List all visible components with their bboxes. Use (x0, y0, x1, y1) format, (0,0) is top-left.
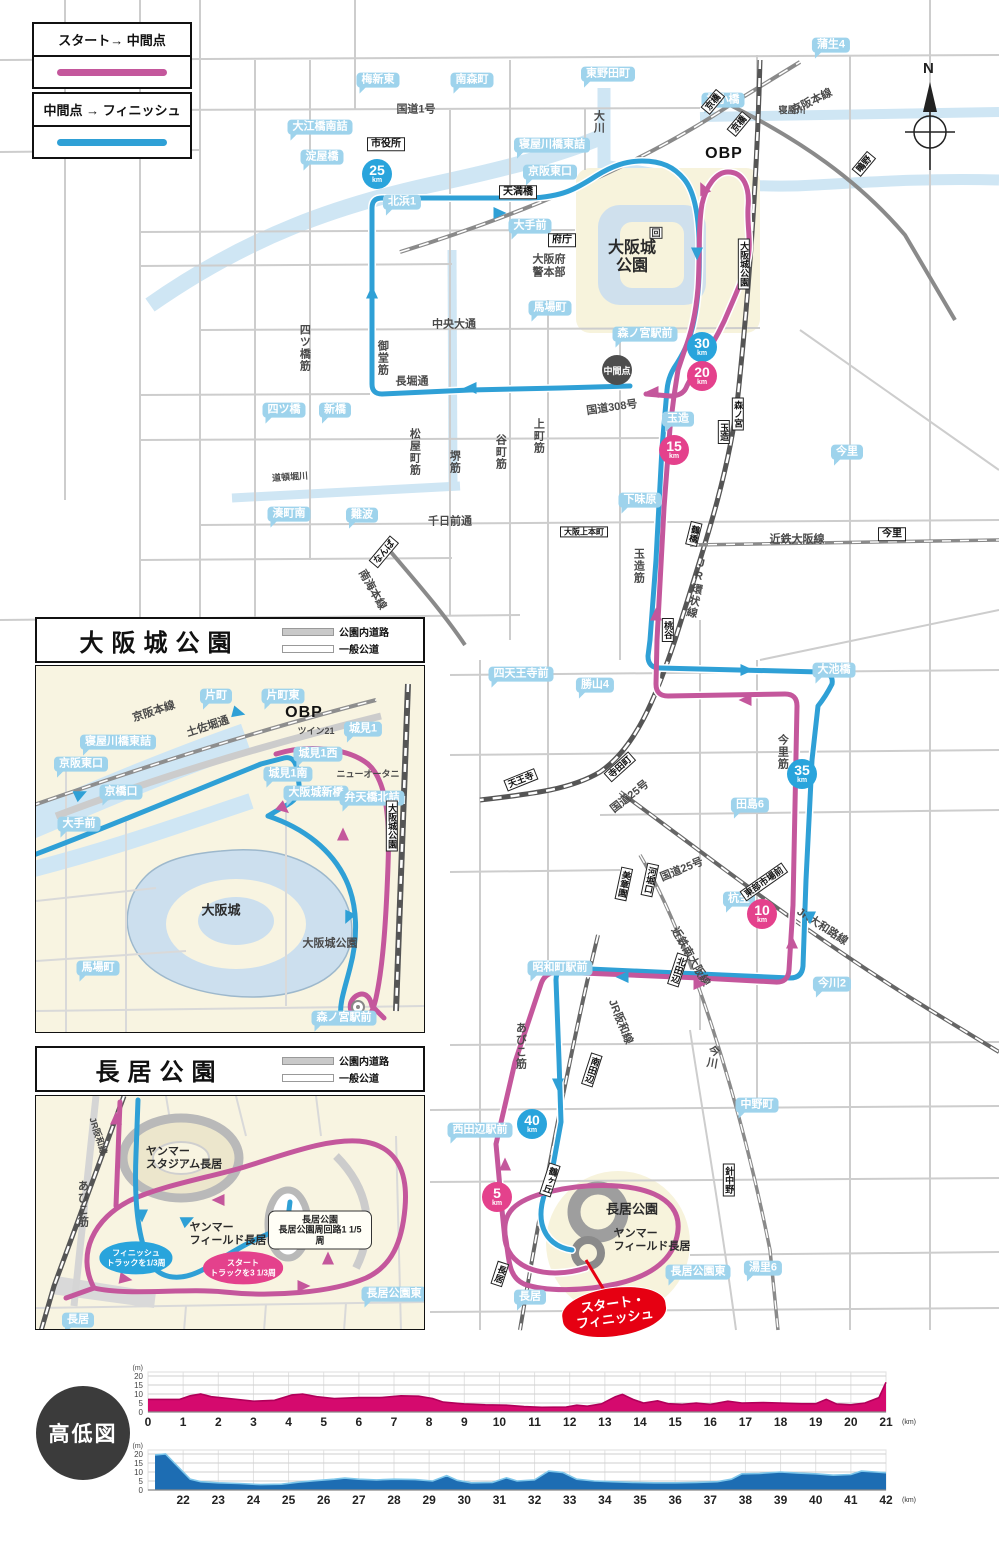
intersection-label: 蒲生4 (812, 38, 850, 53)
y-tick-label: 5 (139, 1477, 144, 1486)
y-tick-label: 5 (139, 1399, 144, 1408)
km-value: 25 (362, 164, 392, 177)
km-marker: 35km (787, 759, 817, 789)
intersection-label: 長居公園東 (362, 1287, 426, 1302)
road-label: 中央大通 (432, 319, 476, 332)
route-arrow-icon (110, 1112, 122, 1125)
x-axis-unit: (km) (902, 1419, 916, 1426)
inset-nagai-legend: 公園内道路 一般公道 (282, 1051, 423, 1087)
x-tick-label: 18 (774, 1415, 788, 1429)
road-label: あびこ筋 (76, 1180, 89, 1228)
y-tick-label: 15 (134, 1381, 143, 1390)
x-tick-label: 34 (598, 1493, 612, 1507)
intersection-label: 馬場町 (77, 961, 120, 976)
x-tick-label: 28 (387, 1493, 401, 1507)
intersection-label: 北浜1 (383, 195, 421, 210)
station-label: 大阪城公園 (386, 801, 398, 852)
x-tick-label: 37 (704, 1493, 718, 1507)
park-road-swatch (282, 1057, 334, 1065)
intersection-label: 城見1西 (293, 747, 342, 762)
x-tick-label: 17 (739, 1415, 753, 1429)
km-unit: km (482, 1200, 512, 1207)
intersection-label: 長居 (514, 1290, 546, 1305)
area-label: 大阪城 公園 (608, 240, 656, 277)
intersection-label: 湊町南 (268, 507, 311, 522)
inset-castle-title: 大阪城公園 (37, 623, 282, 658)
park-road-label: 公園内道路 (339, 1053, 389, 1068)
km-value: 15 (659, 440, 689, 453)
x-tick-label: 24 (247, 1493, 261, 1507)
intersection-label: 森ノ宮駅前 (613, 327, 678, 342)
km-marker: 10km (747, 899, 777, 929)
route-arrow-icon (464, 382, 477, 394)
park-road-label: 公園内道路 (339, 624, 389, 639)
legend-second-half: 中間点 → フィニッシュ (32, 92, 192, 159)
x-tick-label: 7 (391, 1415, 398, 1429)
road-label: OBP (285, 704, 323, 722)
x-tick-label: 16 (704, 1415, 718, 1429)
start-to-midpoint-profile (148, 1382, 886, 1412)
road-label: 谷町筋 (494, 434, 507, 470)
road-label: 堺筋 (448, 450, 461, 474)
x-tick-label: 4 (285, 1415, 292, 1429)
route-arrow-icon (650, 608, 662, 621)
road-label: 松屋町筋 (408, 428, 421, 476)
km-value: 30 (687, 337, 717, 350)
intersection-label: 四ツ橋 (263, 403, 306, 418)
y-tick-label: 10 (134, 1468, 143, 1477)
y-axis-unit: (m) (133, 1443, 144, 1450)
road-label: 大阪府 警本部 (533, 253, 566, 278)
route-arrow-icon (786, 936, 798, 949)
km-value: 40 (517, 1114, 547, 1127)
intersection-label: 下味原 (619, 493, 662, 508)
elevation-badge: 高低図 (36, 1386, 130, 1480)
inset-castle-legend: 公園内道路 一般公道 (282, 622, 423, 658)
x-tick-label: 38 (739, 1493, 753, 1507)
x-axis-unit: (km) (902, 1497, 916, 1504)
road-label: 千日前通 (428, 516, 472, 529)
km-unit: km (659, 453, 689, 460)
intersection-label: 城見1 (344, 722, 382, 737)
x-tick-label: 12 (563, 1415, 577, 1429)
road-label: 大川 (592, 110, 605, 134)
route-arrow-icon (499, 1158, 511, 1171)
station-label: 大阪城公園 (738, 239, 750, 290)
route-arrow-icon (298, 1280, 311, 1292)
km-marker: 20km (687, 361, 717, 391)
route-arrow-icon (694, 978, 707, 990)
road-label: あびこ筋 (514, 1022, 527, 1070)
route-arrow-icon (691, 248, 703, 261)
x-tick-label: 8 (426, 1415, 433, 1429)
intersection-label: 新橋 (319, 403, 351, 418)
km-unit: km (747, 917, 777, 924)
intersection-label: 片町 (200, 689, 232, 704)
road-label: ニューオータニ (336, 769, 399, 779)
intersection-label: 寝屋川橋東詰 (80, 735, 156, 750)
x-tick-label: 10 (493, 1415, 507, 1429)
elevation-charts: 05101520(m)01234567891011121314151617181… (0, 1357, 999, 1537)
x-tick-label: 0 (145, 1415, 152, 1429)
km-value: 10 (747, 904, 777, 917)
intersection-label: 勝山4 (576, 678, 614, 693)
y-tick-label: 0 (139, 1408, 144, 1417)
course-map-page: スタート→ 中間点 中間点 → フィニッシュ N 梅新東南森町東野田町桜小橋蒲生… (0, 0, 999, 1557)
area-label: ヤンマー フィールド長居 (614, 1227, 691, 1252)
x-tick-label: 41 (844, 1493, 858, 1507)
road-label: OBP (705, 145, 743, 163)
x-tick-label: 3 (250, 1415, 257, 1429)
inset-nagai-title: 長居公園 (37, 1052, 282, 1087)
road-label: 大阪城公園 (303, 938, 358, 951)
x-tick-label: 20 (844, 1415, 858, 1429)
intersection-label: 四天王寺前 (489, 667, 554, 682)
x-tick-label: 5 (320, 1415, 327, 1429)
place-label: 天満橋 (499, 185, 537, 199)
legend-first-half-title: スタート→ 中間点 (34, 24, 190, 57)
route-arrow-icon (552, 1079, 564, 1092)
x-tick-label: 6 (356, 1415, 363, 1429)
x-tick-label: 1 (180, 1415, 187, 1429)
road-label: 四ツ橋筋 (298, 324, 311, 372)
x-tick-label: 31 (493, 1493, 507, 1507)
km-marker: 40km (517, 1109, 547, 1139)
area-label: 長居公園 (606, 1203, 658, 1218)
inset-castle-map: 片町片町東OBPツイン21城見1城見1西城見1南大阪城新橋ニューオータニ弁天橋北… (35, 665, 425, 1033)
y-tick-label: 15 (134, 1459, 143, 1468)
x-tick-label: 13 (598, 1415, 612, 1429)
place-label: 市役所 (367, 137, 405, 151)
km-unit: km (517, 1127, 547, 1134)
road-label: 国道1号 (396, 104, 435, 117)
route-arrow-icon (646, 386, 659, 398)
route-arrow-icon (212, 1194, 225, 1206)
place-label: 府庁 (548, 233, 576, 247)
route-arrow-icon (136, 1210, 148, 1223)
legend-first-half: スタート→ 中間点 (32, 22, 192, 89)
x-tick-label: 23 (212, 1493, 226, 1507)
route-arrow-icon (337, 828, 349, 841)
park-road-swatch (282, 628, 334, 636)
inset-nagai-header: 長居公園 公園内道路 一般公道 (35, 1046, 425, 1092)
x-tick-label: 32 (528, 1493, 542, 1507)
station-label: 桃谷 (662, 618, 674, 642)
km-marker: 25km (362, 159, 392, 189)
public-road-label: 一般公道 (339, 1070, 379, 1085)
x-tick-label: 40 (809, 1493, 823, 1507)
km-marker: 30km (687, 332, 717, 362)
station-label: 玉造 (718, 420, 730, 444)
intersection-label: 東野田町 (581, 67, 635, 82)
intersection-label: 中野町 (736, 1098, 779, 1113)
route-arrow-icon (741, 664, 754, 676)
inset-castle-header: 大阪城公園 公園内道路 一般公道 (35, 617, 425, 663)
intersection-label: 西田辺駅前 (448, 1123, 513, 1138)
place-label: 今里 (878, 527, 906, 541)
intersection-label: 京阪東口 (523, 165, 577, 180)
area-label: ヤンマー スタジアム長居 (146, 1145, 222, 1170)
x-tick-label: 35 (633, 1493, 647, 1507)
intersection-label: 玉造 (662, 412, 694, 427)
station-label: 針中野 (723, 1164, 735, 1197)
x-tick-label: 2 (215, 1415, 222, 1429)
km-unit: km (687, 350, 717, 357)
intersection-label: 梅新東 (357, 73, 400, 88)
intersection-label: 京阪東口 (54, 757, 108, 772)
intersection-label: 城見1南 (263, 767, 312, 782)
intersection-label: 田島6 (731, 798, 769, 813)
intersection-label: 湯里6 (744, 1261, 782, 1276)
km-unit: km (687, 379, 717, 386)
x-tick-label: 25 (282, 1493, 296, 1507)
km-unit: km (787, 777, 817, 784)
intersection-label: 淀屋橋 (301, 150, 344, 165)
station-label: 森ノ宮 (732, 398, 744, 431)
compass-rose (895, 60, 965, 180)
x-tick-label: 22 (176, 1493, 190, 1507)
intersection-label: 大手前 (58, 817, 101, 832)
y-tick-label: 0 (139, 1486, 144, 1495)
intersection-label: 大江橋南詰 (288, 120, 353, 135)
route-arrow-icon (616, 971, 629, 983)
km-value: 5 (482, 1187, 512, 1200)
second-half-line-sample (57, 139, 167, 146)
road-label: 玉造筋 (632, 548, 645, 584)
midpoint-marker: 中間点 (602, 355, 632, 385)
compass-icon: N (895, 60, 965, 180)
route-arrow-icon (739, 694, 752, 706)
x-tick-label: 11 (528, 1415, 541, 1429)
x-tick-label: 36 (668, 1493, 682, 1507)
km-unit: km (362, 177, 392, 184)
km-value: 20 (687, 366, 717, 379)
km-marker: 5km (482, 1182, 512, 1212)
x-tick-label: 27 (352, 1493, 366, 1507)
intersection-label: 南森町 (451, 73, 494, 88)
x-tick-label: 30 (458, 1493, 472, 1507)
start-note: スタート トラックを3 1/3周 (203, 1251, 283, 1284)
x-tick-label: 26 (317, 1493, 331, 1507)
route-arrow-icon (322, 1252, 334, 1265)
public-road-swatch (282, 645, 334, 653)
y-tick-label: 10 (134, 1390, 143, 1399)
x-tick-label: 39 (774, 1493, 788, 1507)
route-arrow-icon (804, 912, 816, 925)
route-arrow-icon (494, 207, 507, 219)
y-axis-unit: (m) (133, 1365, 144, 1372)
x-tick-label: 29 (422, 1493, 436, 1507)
km-marker: 15km (659, 435, 689, 465)
area-label: ヤンマー フィールド長居 (190, 1221, 267, 1246)
finish-note: フィニッシュ トラックを1/3周 (99, 1241, 172, 1274)
public-road-swatch (282, 1074, 334, 1082)
first-half-line-sample (57, 69, 167, 76)
road-label: ツイン21 (297, 726, 334, 736)
x-tick-label: 15 (668, 1415, 682, 1429)
intersection-label: 今川2 (813, 977, 851, 992)
road-label: 上町筋 (532, 418, 545, 454)
road-label: 回 (649, 227, 662, 239)
inset-nagai-map: JR阪和線あびこ筋ヤンマー スタジアム長居ヤンマー フィールド長居フィニッシュ … (35, 1095, 425, 1330)
y-tick-label: 20 (134, 1372, 143, 1381)
intersection-label: 片町東 (262, 689, 305, 704)
road-label: 御堂筋 (376, 340, 389, 376)
intersection-label: 馬場町 (529, 301, 572, 316)
intersection-label: 京橋口 (100, 785, 143, 800)
x-tick-label: 9 (461, 1415, 468, 1429)
intersection-label: 難波 (346, 508, 378, 523)
place-label: 大阪上本町 (560, 526, 608, 537)
road-label: 長堀通 (396, 376, 429, 389)
road-label: 近鉄大阪線 (770, 534, 825, 547)
intersection-label: 長居公園東 (666, 1265, 731, 1280)
intersection-label: 森ノ宮駅前 (312, 1011, 377, 1026)
area-label: 大阪城 (201, 904, 240, 919)
public-road-label: 一般公道 (339, 641, 379, 656)
road-label: 寝屋川 (778, 105, 805, 115)
x-tick-label: 42 (879, 1493, 893, 1507)
intersection-label: 長居 (62, 1313, 94, 1328)
legend-second-half-title: 中間点 → フィニッシュ (34, 94, 190, 127)
y-tick-label: 20 (134, 1450, 143, 1459)
intersection-label: 大池橋 (813, 663, 856, 678)
route-arrow-icon (366, 286, 378, 299)
intersection-label: 今里 (831, 445, 863, 460)
x-tick-label: 21 (879, 1415, 893, 1429)
x-tick-label: 14 (633, 1415, 647, 1429)
intersection-label: 大手前 (509, 219, 552, 234)
intersection-label: 寝屋川橋東詰 (514, 138, 590, 153)
intersection-label: 昭和町駅前 (528, 961, 593, 976)
park-loop-note: 長居公園 長居公園周回路1 1/5周 (268, 1210, 372, 1249)
x-tick-label: 33 (563, 1493, 577, 1507)
x-tick-label: 19 (809, 1415, 823, 1429)
km-value: 35 (787, 764, 817, 777)
